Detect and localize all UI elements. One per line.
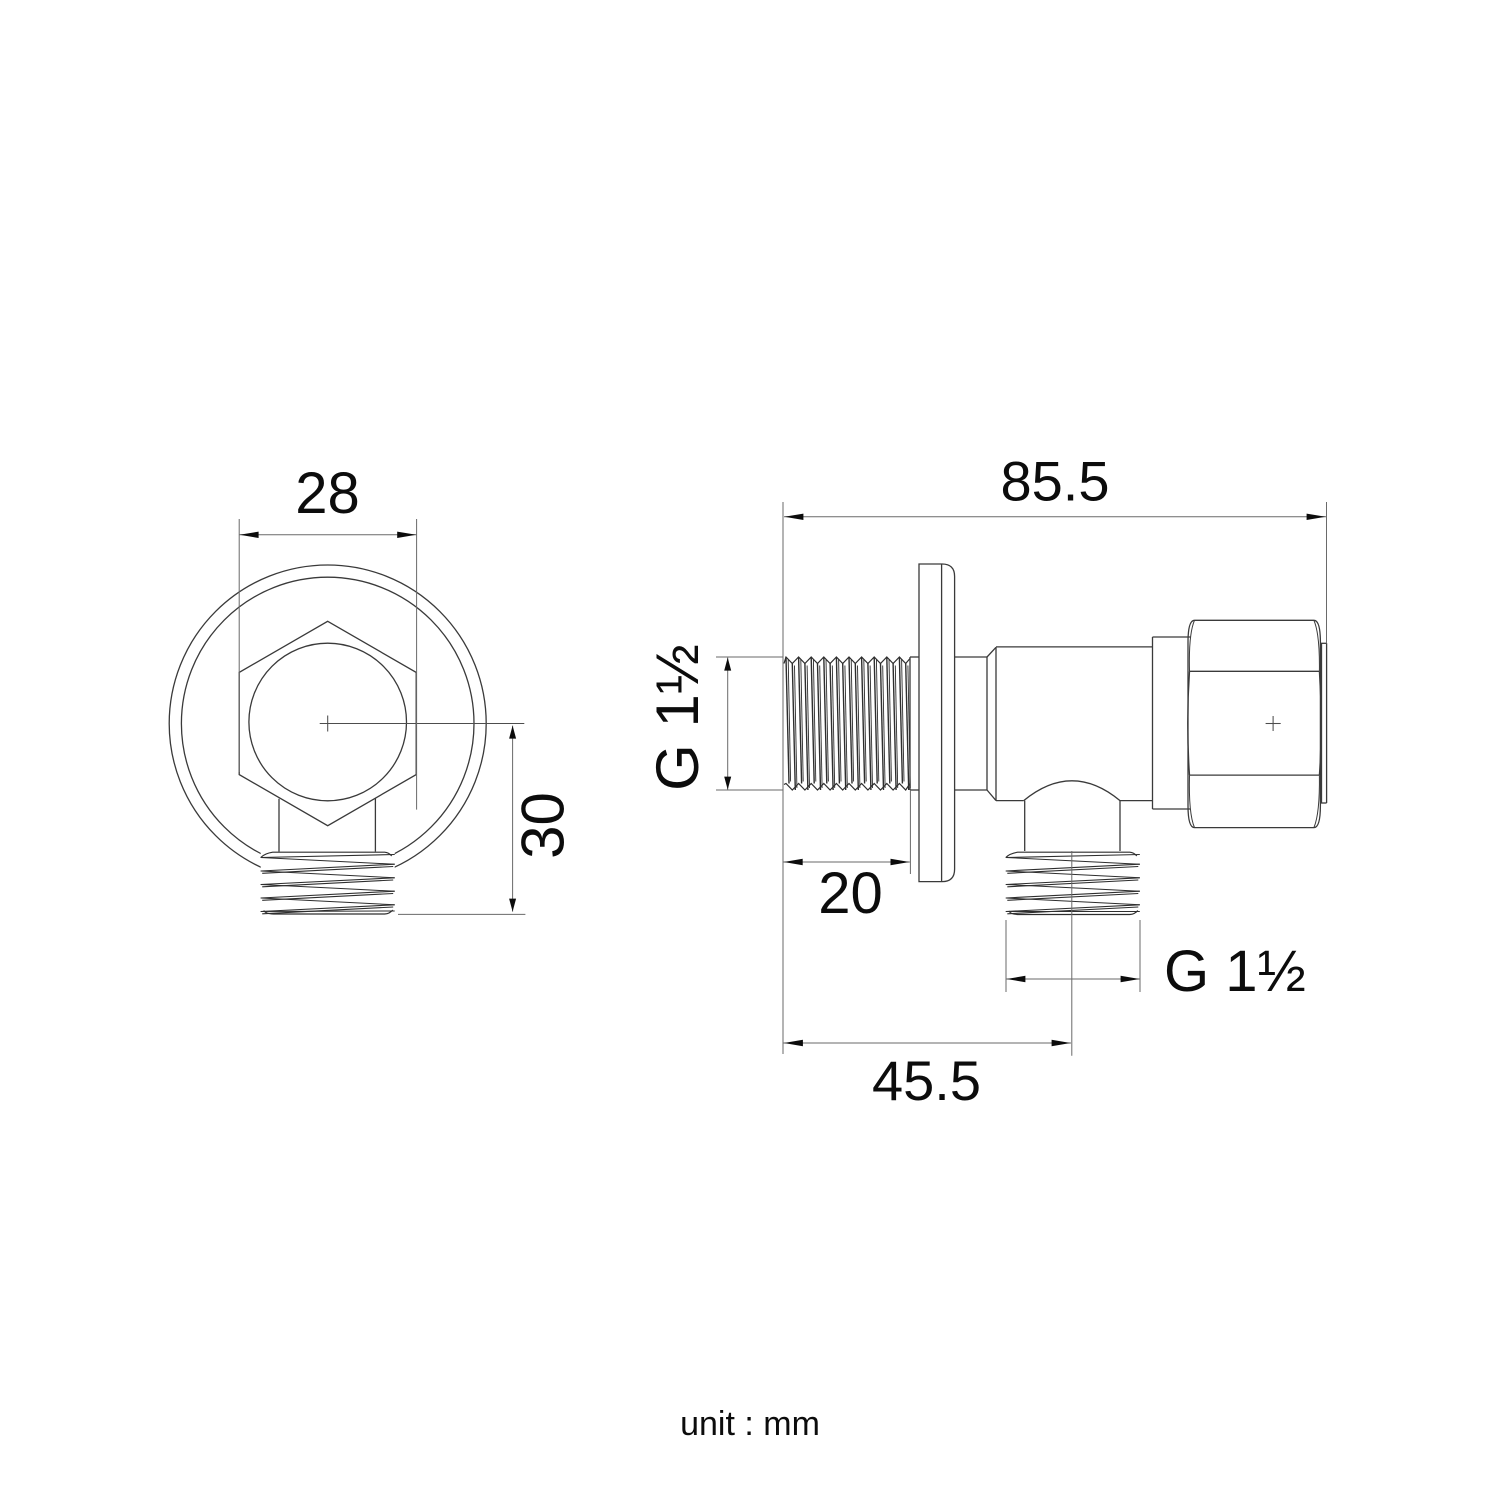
svg-text:85.5: 85.5 bbox=[1001, 450, 1110, 513]
svg-text:45.5: 45.5 bbox=[872, 1049, 981, 1112]
svg-text:28: 28 bbox=[295, 461, 360, 526]
svg-text:G 1½: G 1½ bbox=[644, 644, 711, 791]
svg-text:20: 20 bbox=[818, 861, 883, 926]
svg-text:30: 30 bbox=[510, 792, 577, 859]
svg-text:unit : mm: unit : mm bbox=[680, 1405, 820, 1443]
svg-text:G 1½: G 1½ bbox=[1164, 939, 1306, 1004]
